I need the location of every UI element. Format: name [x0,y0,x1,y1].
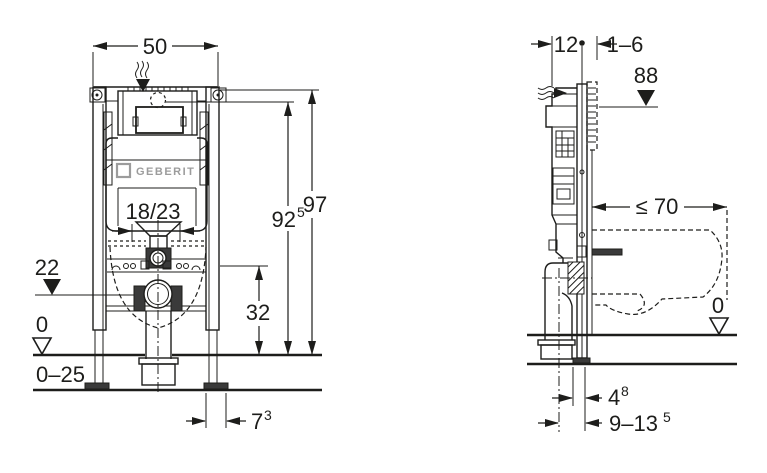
dim-label-height-sub: 92 [272,207,296,232]
foot-plate [204,383,228,389]
dim-label-zero-front: 0 [36,312,48,337]
dim-max-depth: ≤ 70 [592,194,727,300]
level-marker-zero-front: 0 [33,312,51,354]
dim-width: 50 [93,34,218,86]
dim-drain-center-offset: 9–13 5 [538,409,671,436]
front-elevation-view: 50 [33,34,327,434]
geberit-logo: GEBERIT [136,166,195,178]
dim-label-wall: 1–6 [607,32,644,57]
side-elevation-view: 12 1–6 88 [527,32,737,436]
flush-plate-recess [587,82,597,150]
dim-label-depth: 12 [554,32,578,57]
dim-depth: 12 [531,32,585,86]
inspection-opening [136,107,183,133]
wall-reference-dot [579,40,585,46]
frame-legs [85,330,228,389]
level-marker-filled-icon [637,90,655,106]
dim-foot: 7 3 [186,393,272,434]
dim-label-floor-range: 0–25 [36,362,85,387]
level-marker-actuation: 88 [599,63,658,107]
geberit-logo-box [117,164,130,177]
technical-drawing: 50 [0,0,767,473]
dim-wall-thickness: 1–6 [597,32,643,60]
dim-label-drain-center-offset-sup: 5 [663,409,671,425]
dim-label-foot: 7 [251,409,263,434]
foot-plate [573,358,590,363]
level-marker-filled-icon [43,279,61,295]
foot-plate [85,383,109,389]
dim-label-foot-sup: 3 [264,407,272,423]
cistern-side [546,88,577,263]
drain-front [106,280,206,385]
flush-valve-dashed-circle [151,93,166,108]
dim-label-outlet-offset-sup: 8 [621,383,629,399]
drain-elbow-side [538,258,592,432]
level-marker-open-icon [710,318,728,334]
level-marker-open-icon [33,338,51,354]
level-marker-outlet: 22 [35,255,134,295]
dim-height-sub: 92 5 [166,102,305,355]
dim-label-drain-center-offset: 9–13 [609,411,658,436]
dim-label-outlet-height: 22 [35,255,59,280]
threaded-rod [592,249,622,255]
dim-label-width: 50 [143,34,167,59]
drawing-canvas: 50 [0,0,767,473]
dim-label-zero-side: 0 [712,293,724,318]
dim-label-actuation: 88 [634,63,658,88]
dim-label-height: 97 [303,192,327,217]
wc-bowl-dashed-side [592,230,722,314]
dim-label-outlet-offset: 4 [608,385,620,410]
dim-label-drain-height: 32 [246,300,270,325]
level-marker-zero-side: 0 [710,293,728,334]
dim-label-bolt-spacing: 18/23 [125,199,180,224]
dim-drain-height: 32 [220,266,270,355]
dim-label-max-depth: ≤ 70 [636,194,679,219]
